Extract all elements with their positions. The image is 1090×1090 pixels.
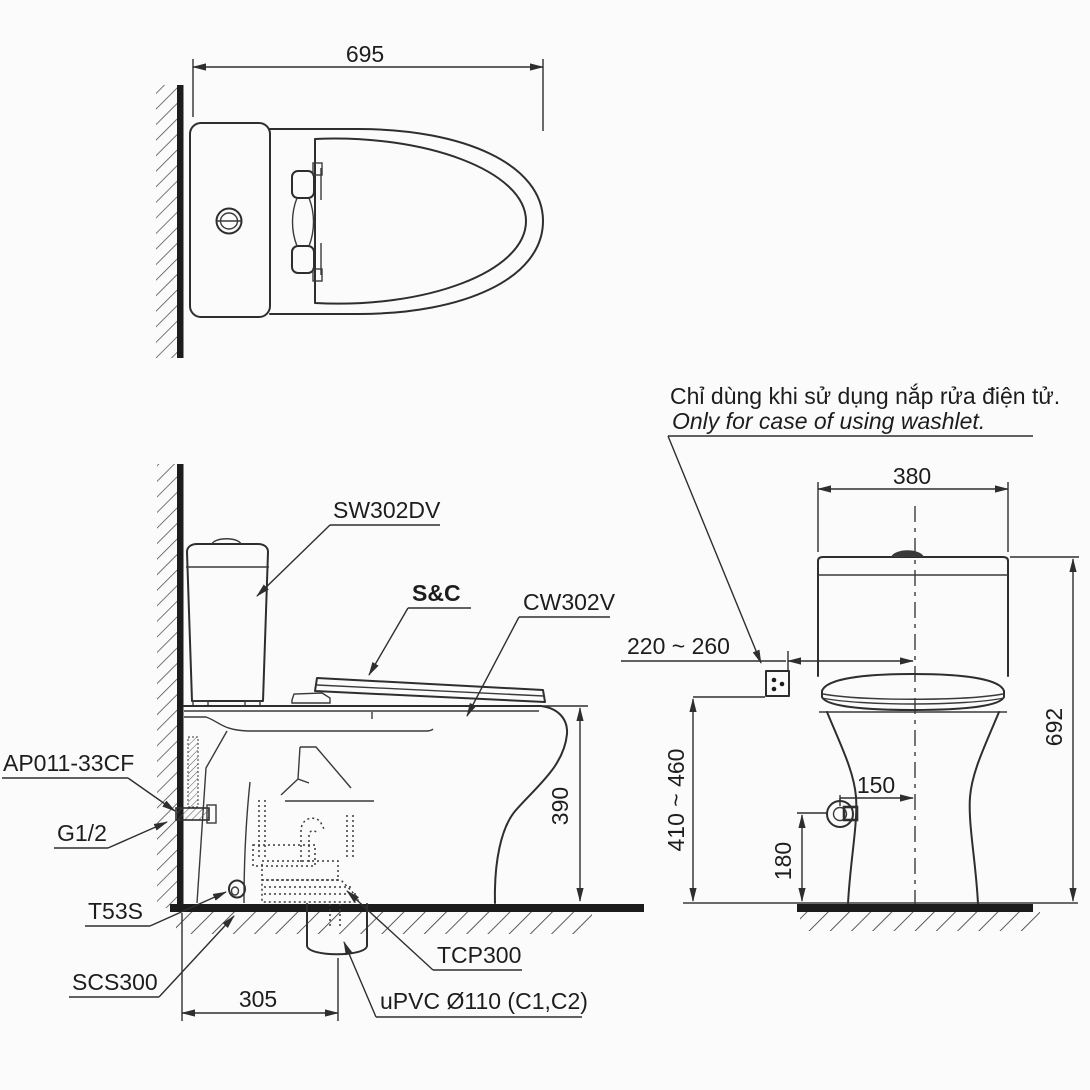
seat-hinge-block [292, 171, 314, 198]
seal-gasket-inner [232, 887, 239, 895]
top-view: 695 [156, 41, 543, 358]
dim-front-height-text: 692 [1041, 708, 1067, 746]
bowl-inner-sweep [184, 717, 433, 731]
side-view: 390 305 SW302DV S&C CW302V AP011-33CF G1… [2, 464, 644, 1021]
part-label-flange: SCS300 [72, 969, 158, 995]
dim-outlet-offset-text: 220 ~ 260 [627, 633, 730, 659]
wall-line [177, 464, 184, 908]
outlet-dot [772, 687, 777, 692]
dim-valve-offset-text: 150 [857, 772, 895, 798]
seat-seam [823, 694, 1003, 699]
pedestal-right [970, 712, 999, 904]
dim-front-width-text: 380 [893, 463, 931, 489]
part-label-cistern: SW302DV [333, 497, 441, 523]
part-label-bowl: CW302V [523, 589, 616, 615]
dim-side-offset-text: 305 [239, 986, 277, 1012]
outlet-dot [772, 678, 777, 683]
floor-line [797, 904, 1033, 912]
trap-channel [259, 800, 265, 858]
part-label-seal: T53S [88, 898, 143, 924]
floor-hatch [800, 912, 1040, 931]
technical-drawing-page: 695 [0, 0, 1090, 1090]
seat-hinge-bar [293, 198, 314, 246]
dim-side-height-text: 390 [547, 787, 573, 825]
trap-hook [301, 818, 324, 862]
sump-funnel [281, 747, 351, 795]
note-vietnamese: Chỉ dùng khi sử dụng nắp rửa điện tử. [670, 383, 1060, 409]
cistern-outline-top [190, 123, 270, 317]
trap-channel [347, 815, 353, 858]
part-label-supply-valve: AP011-33CF [3, 750, 134, 776]
leader-note-to-outlet [668, 436, 761, 663]
seat-hinge-side [292, 693, 330, 703]
wall-line [177, 85, 184, 358]
trap-base [262, 880, 358, 902]
floor-line [170, 904, 644, 912]
part-label-drain-pipe: uPVC Ø110 (C1,C2) [380, 988, 588, 1014]
leader-seat-cover [369, 608, 408, 675]
seat-cover-seam [317, 685, 544, 696]
seat-hinge-block [292, 246, 314, 273]
floor-hatch [176, 912, 592, 934]
cistern-knob [891, 550, 924, 557]
part-label-thread: G1/2 [57, 820, 107, 846]
seat-outline-top [315, 139, 526, 304]
part-label-seat-cover: S&C [412, 580, 461, 606]
toilet-installation-diagram: 695 [0, 0, 1090, 1090]
wall-hatch [156, 85, 177, 358]
outlet-dot [780, 682, 785, 687]
leader-drain-pipe [344, 942, 376, 1017]
dim-valve-height-text: 180 [770, 842, 796, 880]
wall-hatch [157, 464, 177, 908]
note-english: Only for case of using washlet. [672, 408, 985, 434]
power-outlet-icon [766, 671, 789, 696]
dim-top-width-text: 695 [346, 41, 384, 67]
bowl-outline-top [270, 129, 543, 314]
trap-block [253, 845, 315, 866]
supply-pipe [176, 808, 209, 820]
part-label-trap: TCP300 [437, 942, 521, 968]
trap-block [262, 861, 338, 880]
supply-tube [188, 737, 198, 807]
front-view: Chỉ dùng khi sử dụng nắp rửa điện tử. On… [621, 383, 1079, 931]
dim-outlet-height-text: 410 ~ 460 [663, 749, 689, 852]
